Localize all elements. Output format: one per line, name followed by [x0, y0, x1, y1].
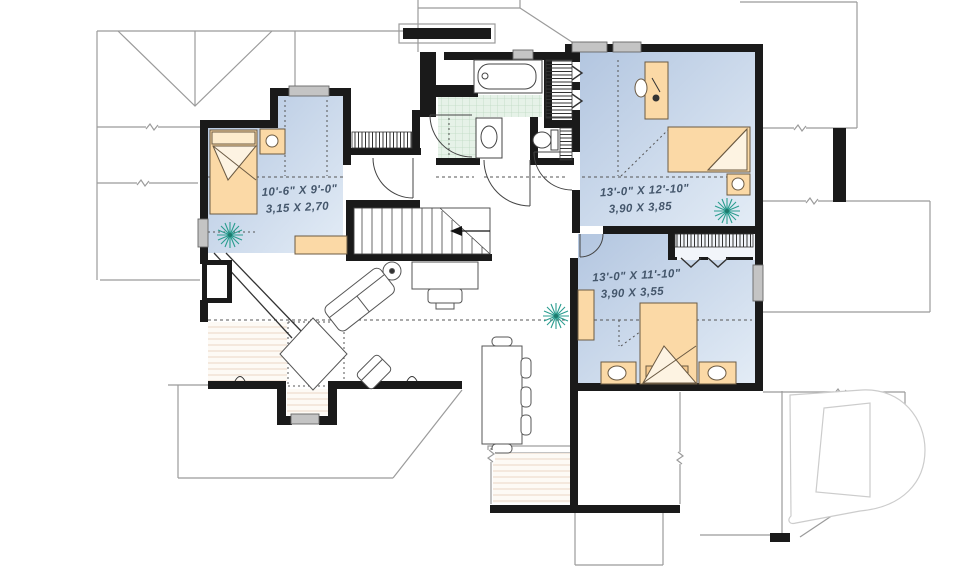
- bathtub: [474, 60, 542, 93]
- bed-left: [210, 130, 257, 214]
- door-bathroom: [484, 160, 530, 206]
- dresser-left: [295, 236, 347, 254]
- desk-loft: [412, 262, 478, 309]
- nightstand-br-left: [601, 362, 636, 384]
- nightstand-top-right: [727, 174, 750, 195]
- window-bedroom2-top-b: [613, 42, 641, 52]
- bed-top-right: [668, 127, 750, 172]
- closet-rod-bedroom2: [546, 60, 572, 118]
- wood-floor-bay: [287, 389, 329, 415]
- window-bedroom2-top-a: [572, 42, 607, 52]
- dormer-band: [435, 85, 478, 97]
- linen-shelves: [560, 128, 572, 160]
- plant-loft: [543, 303, 569, 329]
- toilet: [533, 130, 558, 150]
- window-bedroom-left-top: [289, 86, 329, 96]
- wood-floor-lower: [493, 453, 570, 503]
- closet-rod-bedroom3: [675, 234, 753, 247]
- staircase: [354, 208, 490, 254]
- window-bedroom-left-side: [198, 219, 208, 247]
- window-bay: [291, 414, 319, 424]
- floor-plan-drawing: 10'-6" X 9'-0" 3,15 X 2,70 13'-0" X 12'-…: [0, 0, 960, 569]
- nightstand-br-right: [699, 362, 736, 384]
- diamond-table: [280, 318, 347, 390]
- wood-floor-left: [208, 322, 287, 381]
- chimney-box-interior: [207, 265, 227, 298]
- bed-bottom-right: [640, 303, 697, 384]
- floor-plan-canvas: 10'-6" X 9'-0" 3,15 X 2,70 13'-0" X 12'-…: [0, 0, 960, 569]
- drummond-logo: [789, 390, 925, 524]
- closet-rod-hall: [352, 132, 412, 148]
- sofa: [323, 266, 397, 334]
- dining-table: [482, 337, 531, 453]
- dresser-bottom-right: [578, 290, 594, 340]
- window-bedroom3-side: [753, 265, 763, 301]
- roof-chimney: [403, 28, 491, 39]
- door-bedroom-left: [373, 158, 413, 198]
- vanity-sink: [476, 118, 502, 158]
- window-bathroom: [513, 50, 533, 59]
- nightstand-left: [260, 129, 285, 154]
